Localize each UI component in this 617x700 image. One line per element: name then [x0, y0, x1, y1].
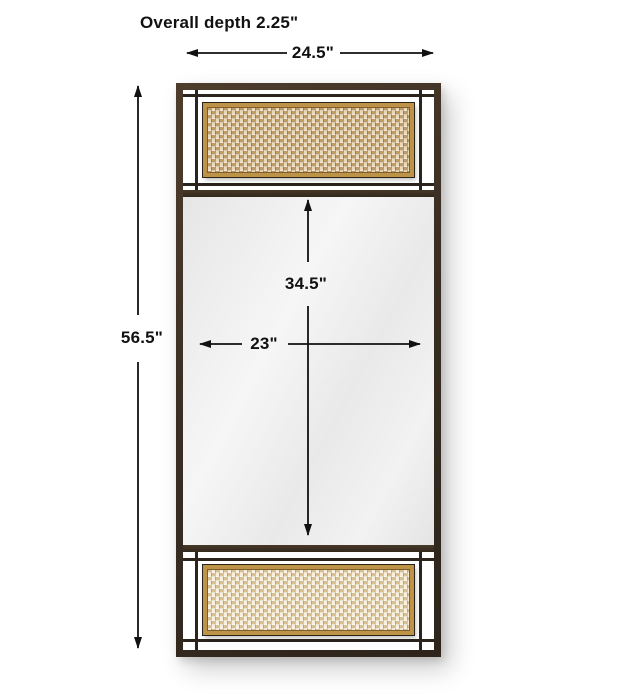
bottom-section-upper-bar [183, 558, 434, 561]
top-cane-section [183, 90, 434, 190]
product-dimension-diagram: Overall depth 2.25" [0, 0, 617, 700]
top-section-left-bar [195, 90, 198, 190]
mirror-height-dimension-label: 34.5" [285, 274, 327, 294]
woven-cane-panel-bottom [203, 565, 414, 635]
lower-divider-rail [183, 545, 434, 552]
mirror-frame-inner [183, 90, 434, 650]
woven-cane-panel-top [203, 103, 414, 177]
mirror-frame [176, 83, 441, 657]
top-section-right-bar [419, 90, 422, 190]
upper-divider-rail [183, 190, 434, 197]
mirror-glass [183, 197, 434, 545]
bottom-section-right-bar [419, 552, 422, 650]
overall-depth-label: Overall depth 2.25" [140, 13, 298, 33]
mirror-width-dimension-label: 23" [250, 334, 278, 354]
top-section-lower-bar [183, 183, 434, 186]
height-dimension-label: 56.5" [121, 328, 163, 348]
bottom-section-lower-bar [183, 639, 434, 642]
bottom-section-left-bar [195, 552, 198, 650]
top-section-upper-bar [183, 94, 434, 97]
bottom-cane-section [183, 552, 434, 650]
width-dimension-label: 24.5" [292, 43, 334, 63]
